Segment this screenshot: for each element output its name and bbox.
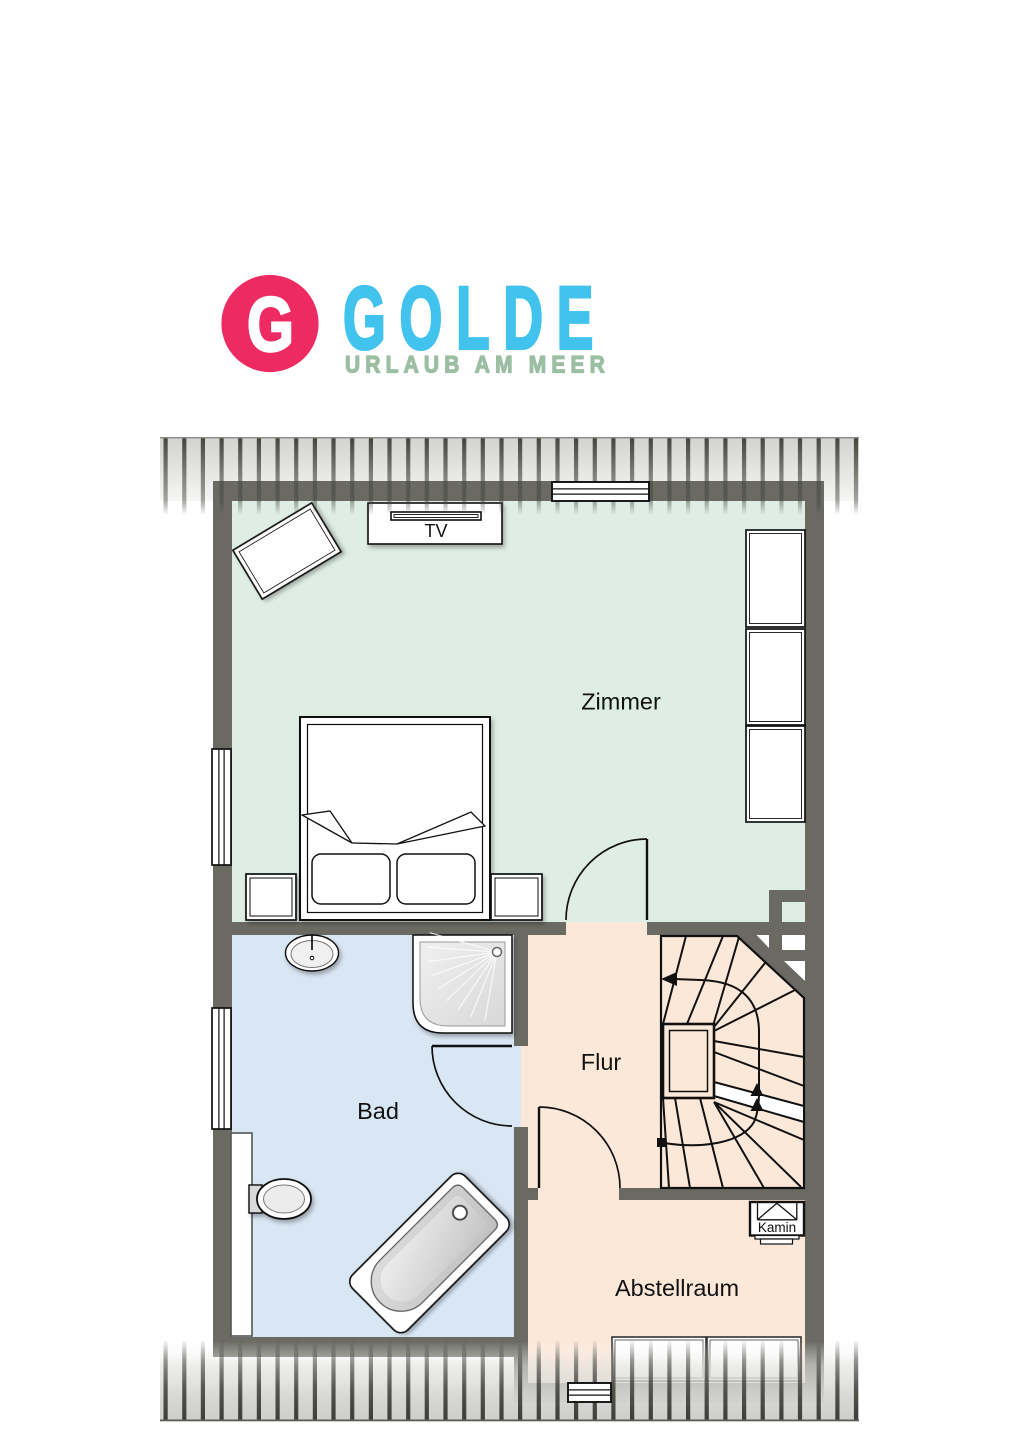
svg-text:URLAUB AM MEER: URLAUB AM MEER xyxy=(345,352,610,379)
svg-text:Kamin: Kamin xyxy=(758,1220,796,1235)
svg-text:Zimmer: Zimmer xyxy=(581,689,661,715)
svg-text:Abstellraum: Abstellraum xyxy=(615,1275,739,1301)
svg-text:Flur: Flur xyxy=(581,1049,622,1075)
svg-text:G: G xyxy=(247,282,294,368)
svg-text:TV: TV xyxy=(424,521,447,541)
svg-text:Bad: Bad xyxy=(357,1098,399,1124)
